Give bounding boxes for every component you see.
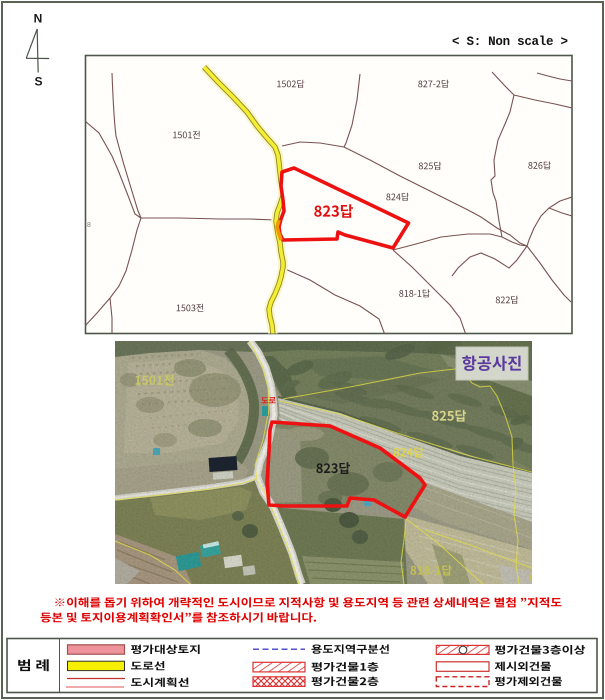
svg-text:8: 8 (529, 573, 534, 583)
svg-text:8: 8 (87, 222, 91, 229)
svg-text:< S: Non scale >: < S: Non scale > (452, 35, 568, 49)
svg-text:N: N (34, 12, 43, 26)
svg-text:S: S (34, 75, 42, 89)
